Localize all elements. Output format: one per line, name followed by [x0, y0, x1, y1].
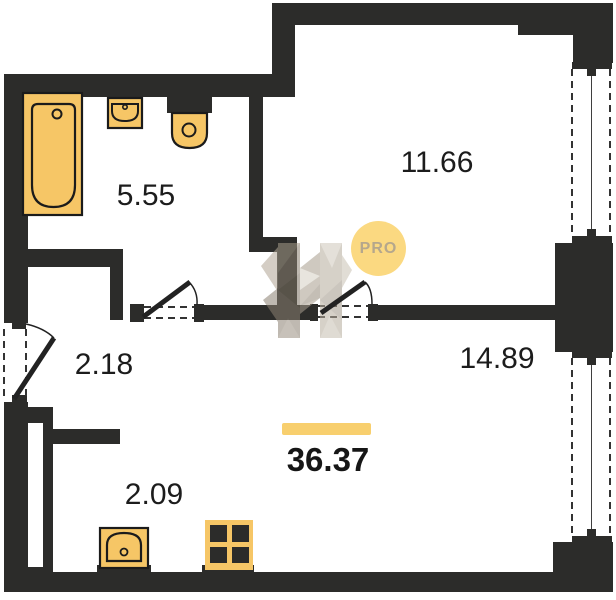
bathtub-icon	[23, 93, 82, 215]
plan-overlay	[0, 0, 616, 600]
watermark-logo	[261, 243, 352, 338]
kitchen-sink-icon	[100, 528, 148, 568]
pro-badge-label: PRO	[360, 240, 398, 258]
floor-plan: PRO 5.55 11.66 2.18 14.89 2.09 36.37	[0, 0, 616, 600]
room-area-label-kitchen: 2.09	[125, 478, 183, 512]
total-area-accent-bar	[282, 423, 371, 435]
room-area-label-hallway: 2.18	[75, 348, 133, 382]
room-area-label-bathroom: 5.55	[117, 179, 175, 213]
room-area-label-living: 14.89	[459, 342, 534, 376]
bathroom-sink-icon	[108, 98, 142, 128]
toilet-icon	[172, 113, 207, 148]
total-area-label: 36.37	[287, 441, 370, 479]
stove-icon	[205, 520, 253, 570]
door-bathroom	[143, 282, 197, 317]
room-area-label-bedroom: 11.66	[401, 146, 474, 180]
pro-badge-circle: PRO	[351, 221, 406, 276]
door-entrance	[14, 324, 54, 399]
